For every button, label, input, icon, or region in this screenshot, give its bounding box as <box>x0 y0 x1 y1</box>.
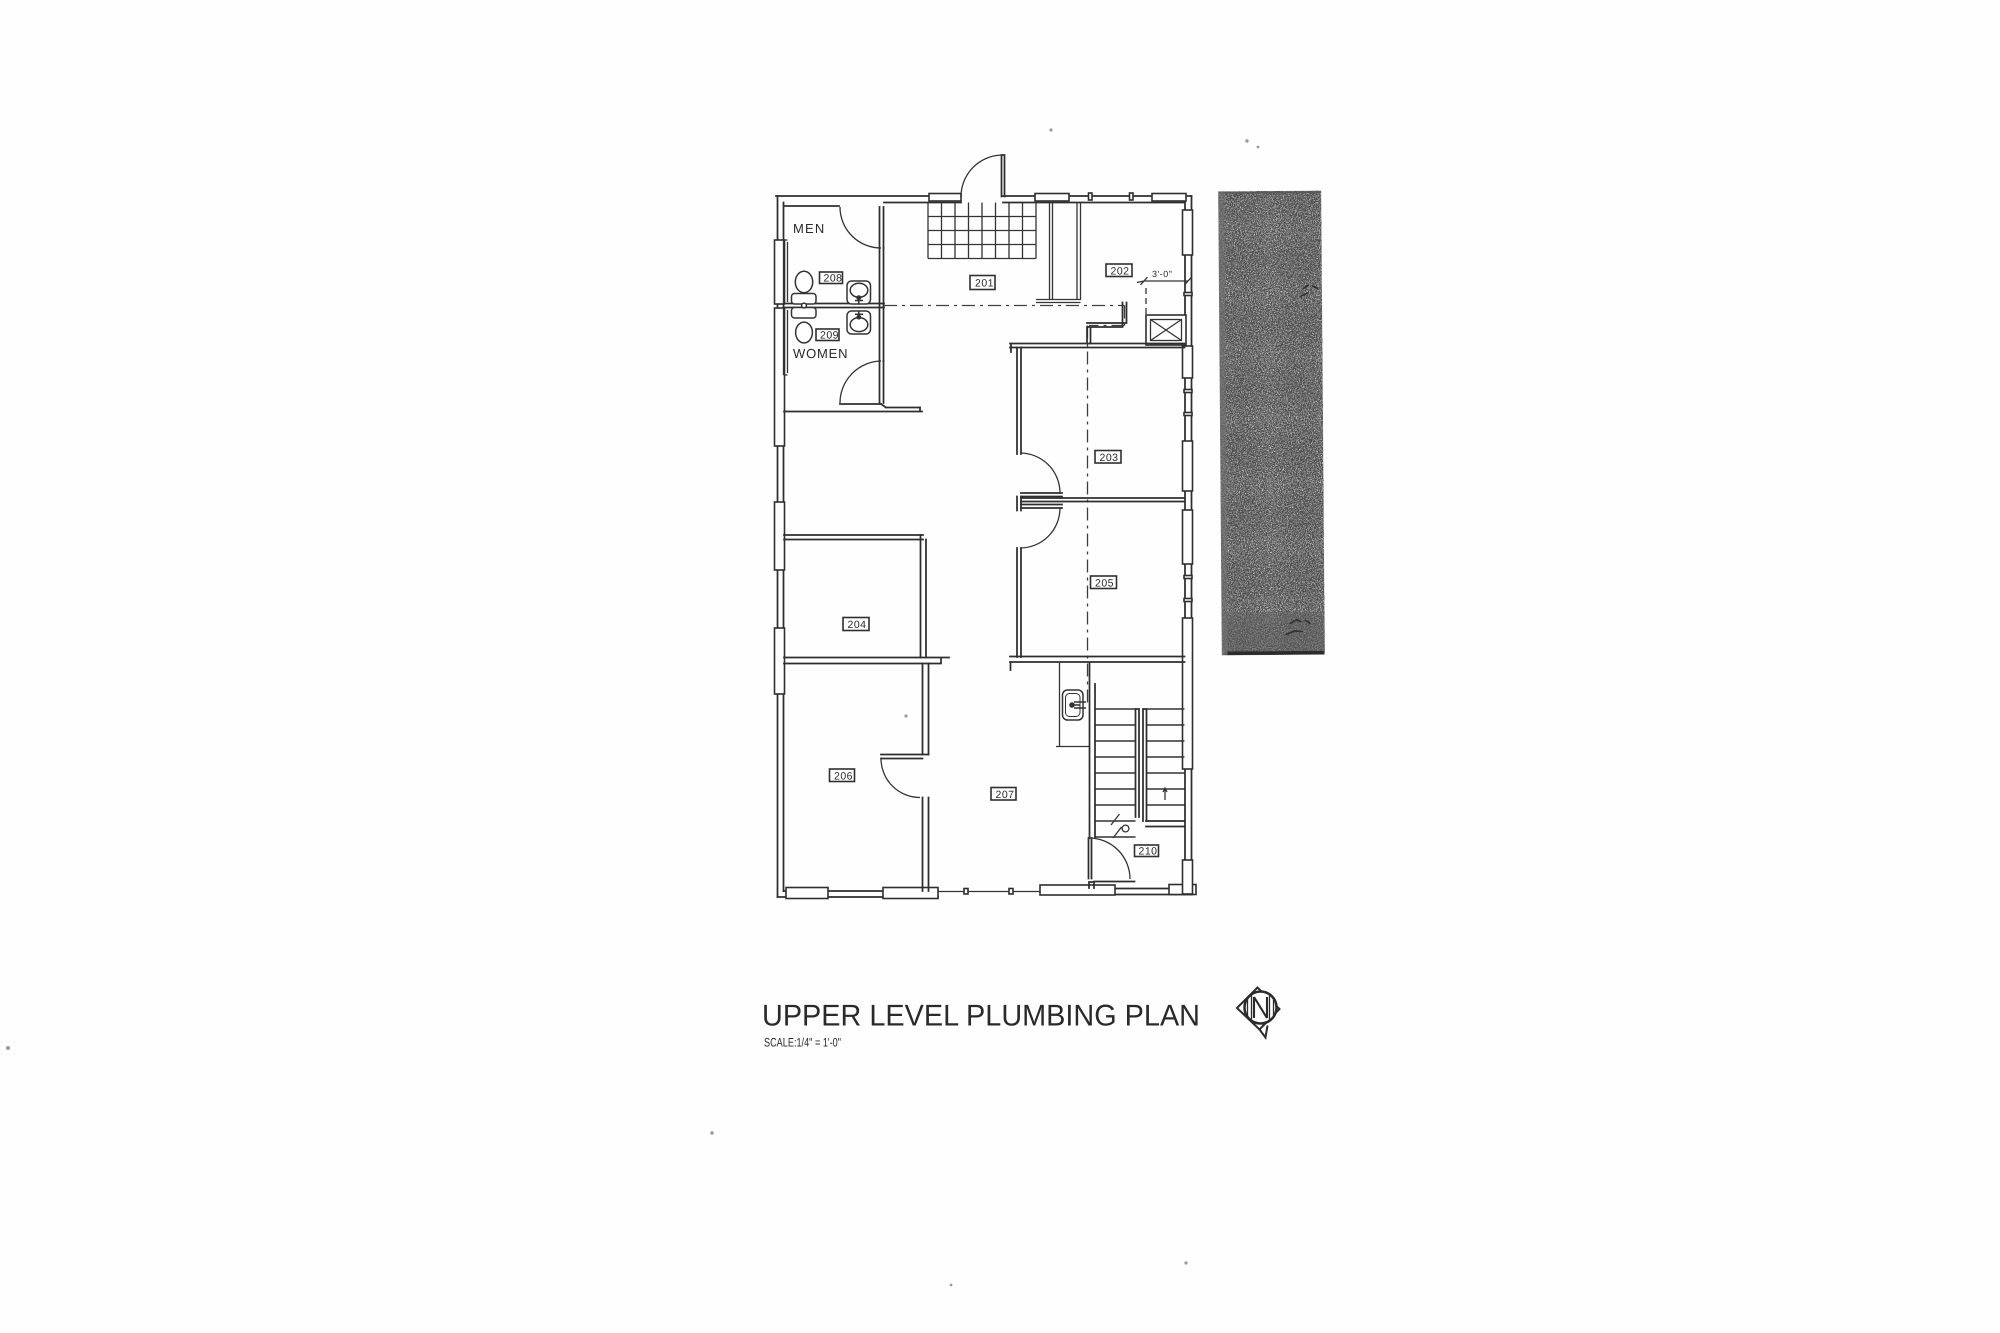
svg-text:204: 204 <box>848 619 867 631</box>
svg-text:UPPER LEVEL PLUMBING PLAN: UPPER LEVEL PLUMBING PLAN <box>762 1000 1200 1033</box>
svg-text:209: 209 <box>820 330 839 342</box>
svg-text:202: 202 <box>1111 266 1130 278</box>
svg-text:205: 205 <box>1095 578 1114 590</box>
svg-text:207: 207 <box>996 789 1015 801</box>
svg-text:WOMEN: WOMEN <box>793 346 848 361</box>
svg-text:206: 206 <box>834 771 853 783</box>
svg-text:203: 203 <box>1100 452 1119 464</box>
svg-text:SCALE:1/4" = 1'-0": SCALE:1/4" = 1'-0" <box>764 1036 841 1050</box>
svg-text:201: 201 <box>975 278 994 290</box>
svg-text:MEN: MEN <box>793 221 826 236</box>
svg-text:210: 210 <box>1139 846 1158 858</box>
svg-text:3'-0": 3'-0" <box>1152 269 1172 279</box>
svg-text:208: 208 <box>824 273 843 285</box>
